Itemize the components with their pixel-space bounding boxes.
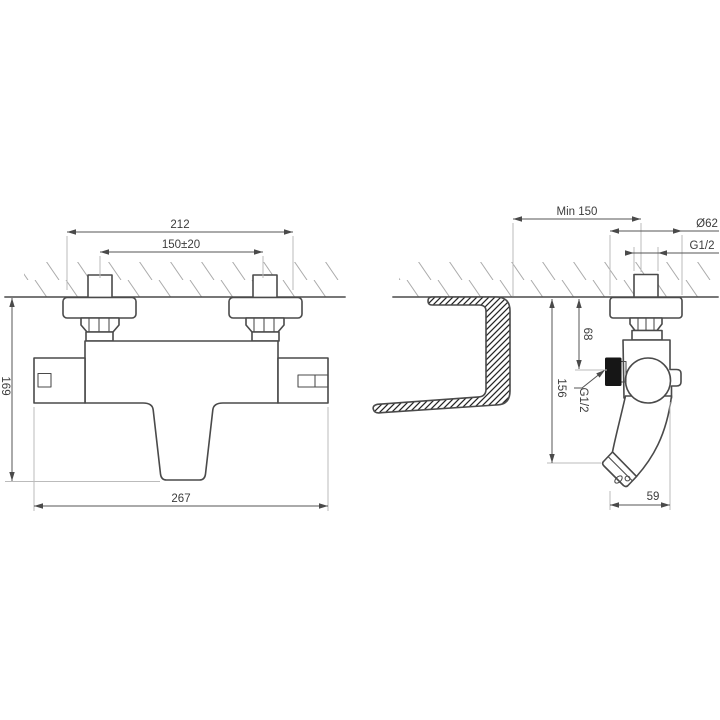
- inlet-pipe-left: [88, 275, 112, 298]
- dim-min150-label: Min 150: [557, 206, 598, 218]
- connection-nut-left: [81, 318, 119, 341]
- mixer-body-front: [85, 341, 278, 480]
- dim-g12-top-label: G1/2: [690, 240, 715, 252]
- knob-circle-side: [626, 358, 671, 403]
- wall-hatch-side: [399, 262, 714, 297]
- escutcheon-side: [610, 298, 682, 319]
- escutcheon-left: [63, 298, 136, 319]
- drawing-canvas: 212 150±20 169 267: [0, 0, 720, 720]
- wall-hatch-front: [24, 262, 343, 297]
- connection-nut-side: [630, 318, 662, 340]
- front-view: 212 150±20 169 267: [0, 219, 345, 511]
- dim-156-label: 156: [555, 378, 567, 397]
- dim-150-label: 150±20: [162, 239, 200, 251]
- shower-outlet-knurl: [605, 358, 622, 387]
- dim-212-label: 212: [170, 219, 189, 231]
- bathtub-rim-section: [373, 297, 510, 413]
- handle-left: [34, 358, 85, 403]
- dim-169-label: 169: [0, 376, 11, 395]
- dim-267-label: 267: [171, 493, 190, 505]
- label-g12-outlet: G1/2: [577, 388, 589, 413]
- inlet-pipe-side: [634, 275, 658, 298]
- handle-right: [278, 358, 328, 403]
- dim-68-label: 68: [581, 328, 593, 341]
- side-view: Min 150 Ø62 G1/2 68 156 G1/2 59: [373, 206, 719, 510]
- inlet-pipe-right: [253, 275, 277, 298]
- dim-59-label: 59: [647, 491, 660, 503]
- escutcheon-right: [229, 298, 302, 319]
- dim-dia62-label: Ø62: [696, 218, 718, 230]
- connection-nut-right: [246, 318, 284, 341]
